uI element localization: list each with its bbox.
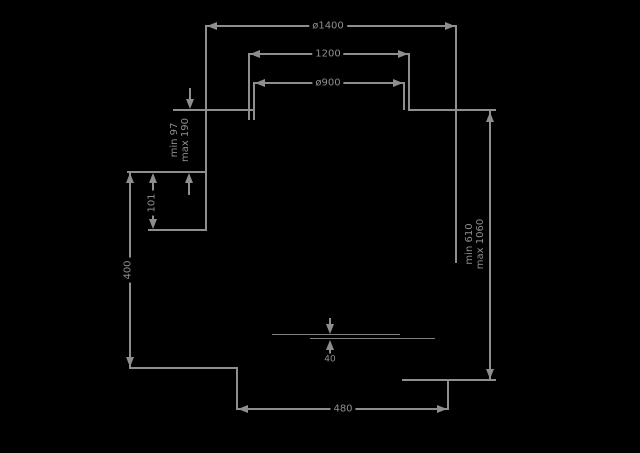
left-adjustable-arrow-up xyxy=(185,173,193,183)
middle-dim-arrow-right xyxy=(398,50,408,58)
left-height-arrow-up xyxy=(126,173,134,183)
left-adjustable-label-min: min 97 xyxy=(169,118,180,162)
left-height-arrow-down xyxy=(126,357,134,367)
thickness-arrow-down xyxy=(326,324,334,334)
inner-dim-arrow-right xyxy=(393,79,403,87)
panel-line-lower xyxy=(310,338,435,339)
left-height-label: 400 xyxy=(122,257,135,282)
offset-bottom-line xyxy=(148,229,207,231)
plate-line-right xyxy=(408,109,496,111)
middle-dim-arrow-left xyxy=(250,50,260,58)
bottom-left-step xyxy=(236,367,238,410)
right-adjustable-label: min 610 max 1060 xyxy=(463,216,487,272)
panel-line-upper xyxy=(272,334,400,335)
bottom-left-line xyxy=(129,367,237,369)
bottom-width-arrow-right xyxy=(437,405,447,413)
right-adjustable-arrow-down xyxy=(486,369,494,379)
middle-width-label: 1200 xyxy=(312,48,343,61)
offset-arrow-down xyxy=(149,219,157,229)
bottom-width-label: 480 xyxy=(330,403,355,416)
dimension-drawing: ø1400 1200 ø900 min 97 max 190 101 400 m… xyxy=(0,0,640,453)
right-adjustable-arrow-up xyxy=(486,112,494,122)
plate-line-left xyxy=(173,109,253,111)
left-adjustable-arrow-down xyxy=(186,99,194,109)
bottom-width-arrow-left xyxy=(238,405,248,413)
inner-diameter-label: ø900 xyxy=(312,77,343,90)
inner-ext-line-left xyxy=(253,82,255,120)
right-adjustable-dim-line xyxy=(489,110,491,379)
left-adjustable-arrow-shaft-bottom xyxy=(188,183,190,195)
outer-diameter-label: ø1400 xyxy=(309,20,347,33)
offset-top-line xyxy=(127,171,207,173)
middle-ext-line-right xyxy=(408,53,410,110)
inner-ext-line-right xyxy=(403,82,405,110)
outer-ext-line-left xyxy=(205,25,207,230)
right-adjustable-label-max: max 1060 xyxy=(475,219,486,269)
right-adjustable-label-min: min 610 xyxy=(464,219,475,269)
outer-ext-line-right xyxy=(455,25,457,263)
offset-arrow-up xyxy=(149,173,157,183)
center-thickness-label: 40 xyxy=(321,354,338,367)
outer-dim-arrow-left xyxy=(207,22,217,30)
left-adjustable-label-max: max 190 xyxy=(180,118,191,162)
outer-dim-arrow-right xyxy=(445,22,455,30)
bottom-right-line xyxy=(402,379,496,381)
bottom-right-step xyxy=(447,379,449,410)
left-offset-label: 101 xyxy=(146,190,159,215)
inner-dim-arrow-left xyxy=(255,79,265,87)
left-adjustable-label: min 97 max 190 xyxy=(168,115,192,165)
